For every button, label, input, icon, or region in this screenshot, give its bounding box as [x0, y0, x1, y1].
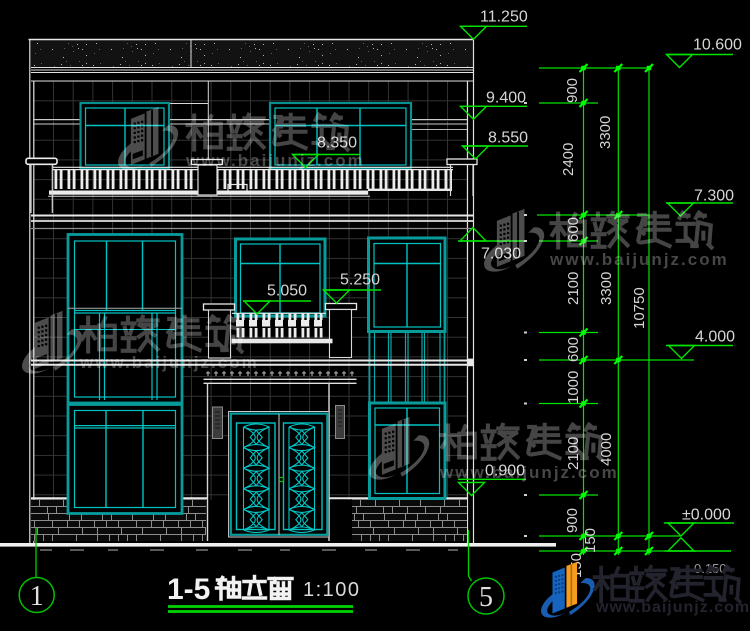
svg-text:9.400: 9.400 — [486, 90, 526, 107]
svg-text:www.baijunjz.com: www.baijunjz.com — [79, 353, 259, 372]
svg-text:www.baijunjz.com: www.baijunjz.com — [439, 463, 619, 482]
svg-text:7.300: 7.300 — [694, 188, 734, 205]
svg-text:10750: 10750 — [631, 287, 648, 329]
svg-text:4.000: 4.000 — [695, 329, 735, 346]
svg-text:2400: 2400 — [560, 143, 577, 176]
svg-text:www.baijunjz.com: www.baijunjz.com — [185, 151, 365, 170]
svg-text:3300: 3300 — [598, 272, 615, 305]
svg-text:5.050: 5.050 — [267, 283, 307, 300]
svg-text:10.600: 10.600 — [693, 37, 742, 54]
svg-text:11.250: 11.250 — [480, 9, 528, 26]
svg-text:1000: 1000 — [565, 371, 582, 404]
svg-text:±0.000: ±0.000 — [682, 507, 731, 524]
svg-text:www.baijunjz.com: www.baijunjz.com — [549, 250, 729, 269]
svg-text:600: 600 — [565, 337, 582, 362]
svg-text:www.baijunjz.com: www.baijunjz.com — [595, 599, 750, 616]
svg-text:1: 1 — [30, 581, 44, 612]
svg-text:3300: 3300 — [597, 116, 614, 149]
svg-text:1:100: 1:100 — [303, 579, 361, 601]
svg-text:900: 900 — [564, 78, 581, 103]
svg-text:2100: 2100 — [565, 272, 582, 305]
svg-text:5: 5 — [479, 582, 493, 613]
svg-text:1-5: 1-5 — [167, 573, 210, 606]
svg-text:5.250: 5.250 — [340, 272, 380, 289]
svg-text:900: 900 — [564, 508, 581, 533]
svg-text:8.550: 8.550 — [488, 130, 528, 147]
svg-text:150: 150 — [582, 528, 599, 553]
